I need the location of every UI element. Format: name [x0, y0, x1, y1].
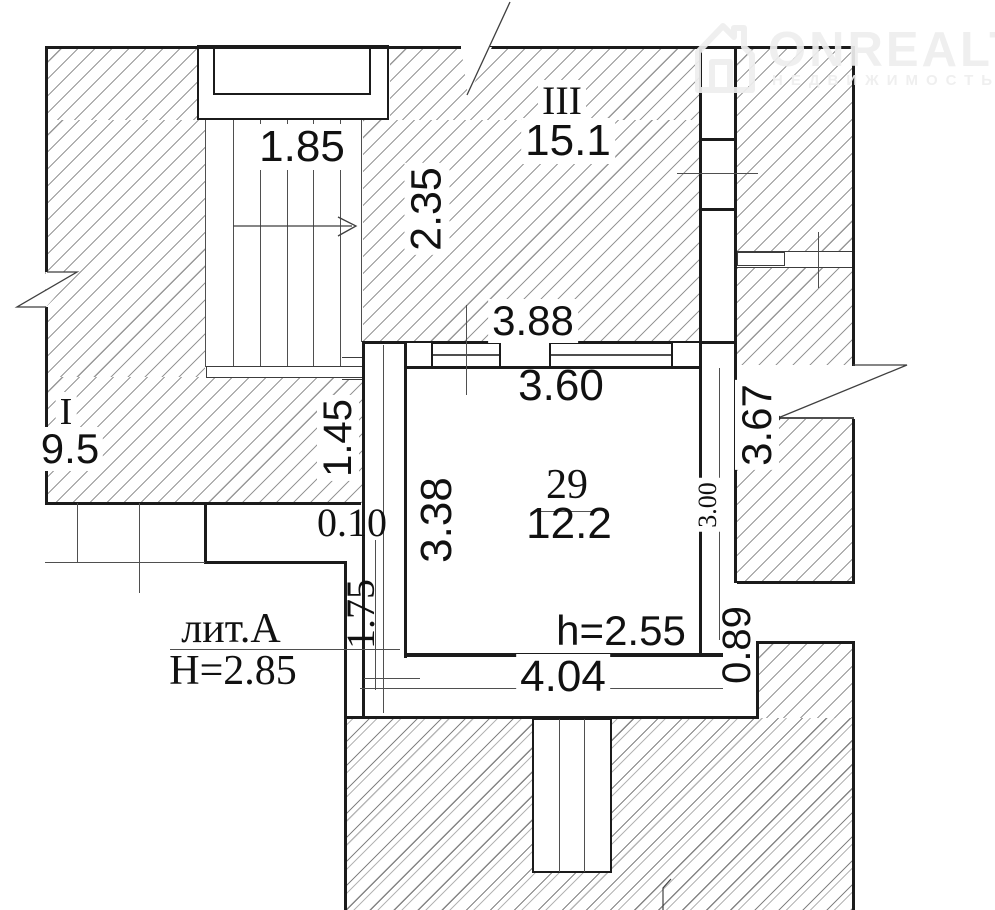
watermark-subtitle: НЕДВИЖИМОСТЬ [772, 72, 995, 89]
dim-left-upper: 1.45 [317, 395, 359, 481]
dim-room-left: 3.38 [415, 477, 459, 563]
bottom-tick-line [663, 879, 671, 910]
dim-stair-width: 1.85 [255, 124, 349, 170]
left-door-notch [46, 272, 77, 307]
dim-left-lower: 1.75 [341, 579, 381, 649]
dim-room-top: 3.60 [518, 364, 604, 408]
onrealt-house-icon [690, 14, 760, 98]
right-opening-leader-line [778, 365, 907, 418]
dim-top-wall: 3.88 [488, 299, 578, 343]
building-liter: лит.А [181, 608, 280, 650]
dim-room-right: 3.00 [694, 478, 722, 532]
dim-right-corridor: 3.67 [735, 380, 779, 470]
dim-room-bottom: 4.04 [516, 654, 610, 700]
dim-stair-flight: 2.35 [405, 163, 450, 255]
floor-plan: ONREALT НЕДВИЖИМОСТЬ 1.85 2.35 III 15.1 … [0, 0, 995, 910]
dim-bottom-right: 0.89 [717, 606, 757, 684]
watermark-brand: ONREALT [768, 22, 995, 78]
room-III-area: 15.1 [521, 118, 615, 164]
plan-annotations-overlay [0, 0, 995, 910]
room-I-area: 9.5 [37, 427, 103, 471]
top-break-notch [461, 47, 492, 96]
room-29-area: 12.2 [526, 502, 612, 546]
dim-wall-offset: 0.10 [317, 503, 387, 543]
room-29-ceiling-height: h=2.55 [556, 610, 686, 652]
building-floor-height: Н=2.85 [169, 650, 297, 692]
watermark: ONREALT НЕДВИЖИМОСТЬ [688, 10, 993, 100]
